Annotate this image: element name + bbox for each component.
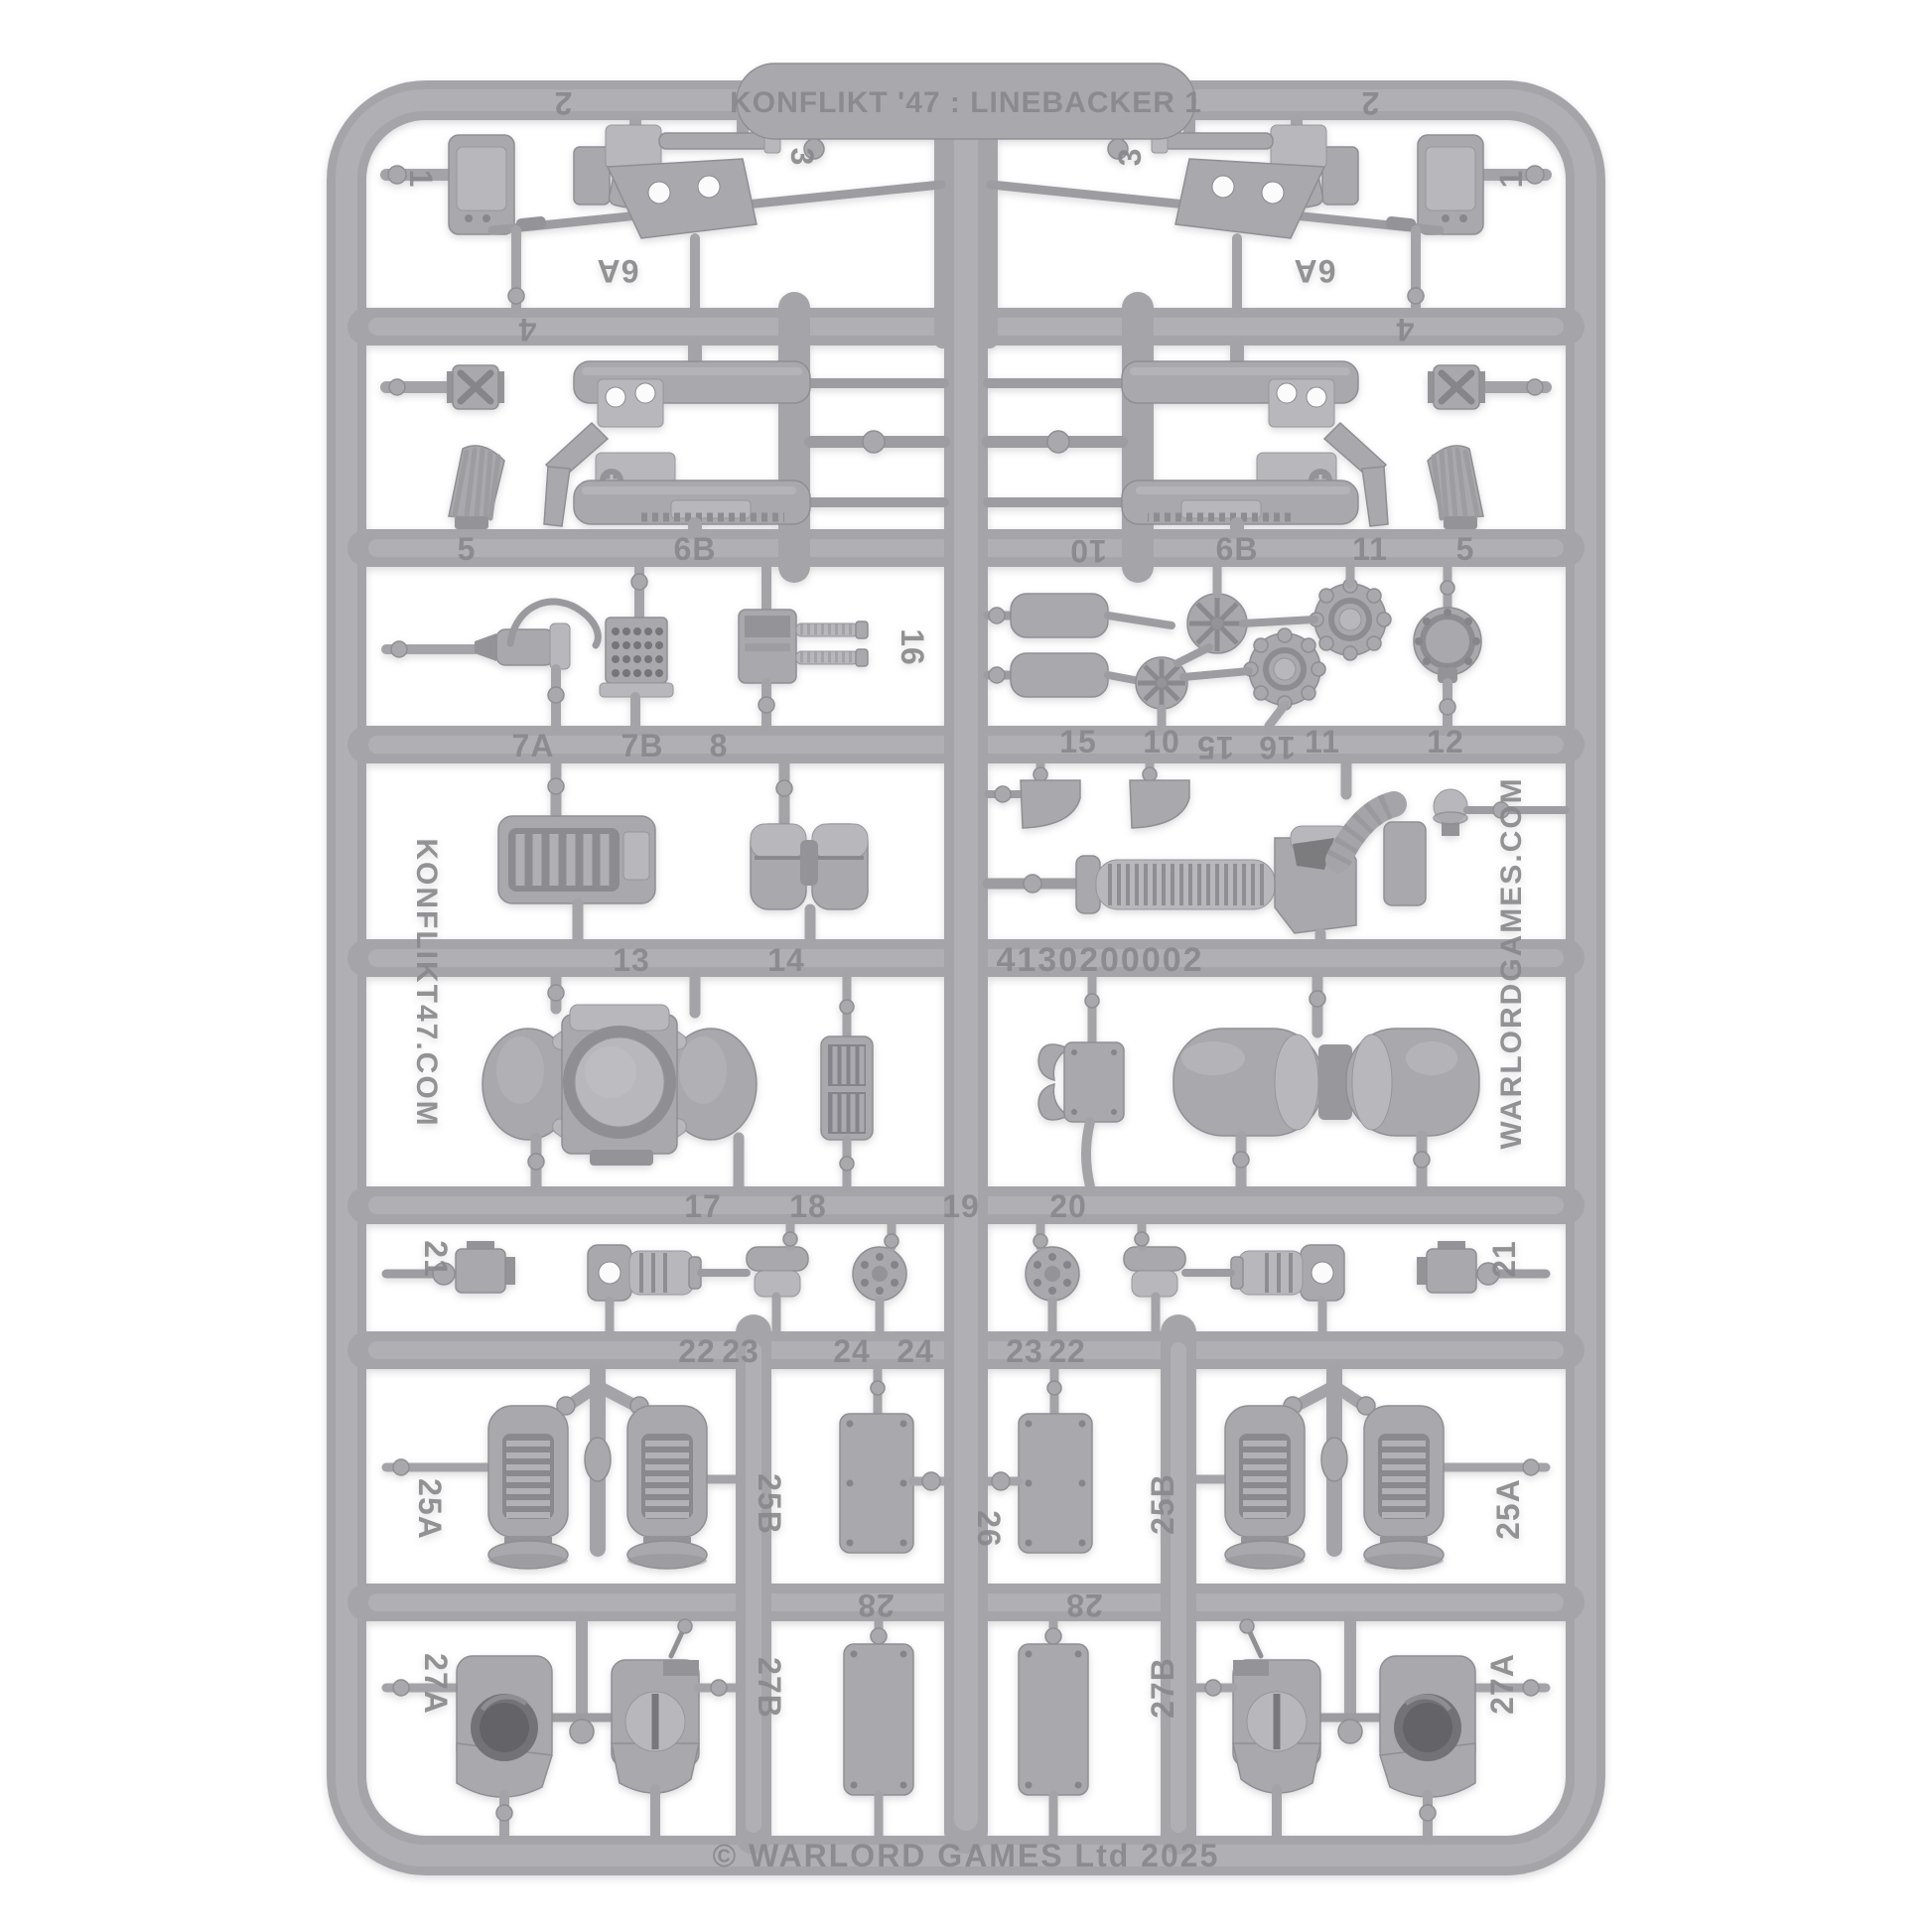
part-number-label: 4 [1396,312,1415,347]
part-number-label: 6A [597,253,639,289]
right-rail-url: WARLORDGAMES.COM [1495,776,1528,1149]
part-number-label: 7A [512,728,555,763]
part-number-label: 5 [458,531,477,567]
part-number-label: 15 [1059,724,1097,759]
part-number-label: 25A [412,1478,448,1540]
part-number-label: 12 [1427,724,1464,759]
part-number-label: 11 [1352,531,1388,567]
part-number-label: 27B [752,1657,787,1719]
part-number-label: 6B [1216,531,1259,567]
part-number-label: 27A [418,1653,454,1715]
part-number-label: 10 [1143,724,1180,759]
part-number-label: 20 [1049,1188,1087,1224]
part-number-label: 24 [833,1333,871,1369]
part-number-label: 16 [1258,730,1296,765]
part-number-label: 6A [1294,253,1336,289]
part-number-label: 3 [784,148,820,167]
part-number-label: 27B [1145,1657,1180,1719]
part-number-label: 10 [1069,533,1107,569]
part-number-label: 4 [518,312,537,347]
part-number-label: 18 [789,1188,827,1224]
sprue: KONFLIKT '47 : LINEBACKER 1 KONFLIKT47.C… [346,64,1586,1873]
part-number-label: 2 [1361,85,1380,121]
part-number-label: 19 [942,1188,980,1224]
part-number-label: 7B [621,728,664,763]
part-number-label: 26 [971,1510,1007,1548]
sprue-title: KONFLIKT '47 : LINEBACKER 1 [730,86,1202,119]
part-number-label: 23 [722,1333,759,1369]
part-number-label: 11 [1305,724,1340,759]
part-number-label: 14 [767,942,805,978]
part-number-label: 21 [418,1240,454,1278]
part-number-label: 23 [1006,1333,1043,1369]
part-number-label: 1 [1493,170,1529,189]
part-number-label: 24 [897,1333,934,1369]
part-number-label: 6B [674,531,717,567]
part-number-label: 22 [1048,1333,1086,1369]
copyright-text: © WARLORD GAMES Ltd 2025 [713,1838,1220,1873]
part-number-label: 8 [710,728,729,763]
part-number-label: 22 [678,1333,716,1369]
part-number-label: 16 [895,628,930,666]
part-number-label: 28 [1065,1587,1103,1623]
part-number-label: 1 [403,170,439,189]
part-number-label: 17 [684,1188,722,1224]
part-number-label: 3 [1112,148,1148,167]
part-number-label: 25B [752,1473,787,1535]
part-number-label: 25B [1145,1473,1180,1535]
part-number-label: 15 [1196,730,1234,765]
product-code: 4130200002 [996,941,1203,979]
part-number-label: 2 [554,85,573,121]
left-rail-url: KONFLIKT47.COM [410,838,443,1127]
part-number-label: 13 [613,942,650,978]
part-number-label: 25A [1490,1478,1526,1540]
part-number-label: 28 [857,1587,895,1623]
sprue-photo: KONFLIKT '47 : LINEBACKER 1 KONFLIKT47.C… [0,0,1932,1932]
part-number-label: 21 [1486,1240,1522,1278]
part-number-label: 5 [1456,531,1475,567]
part-number-label: 27A [1484,1653,1520,1715]
